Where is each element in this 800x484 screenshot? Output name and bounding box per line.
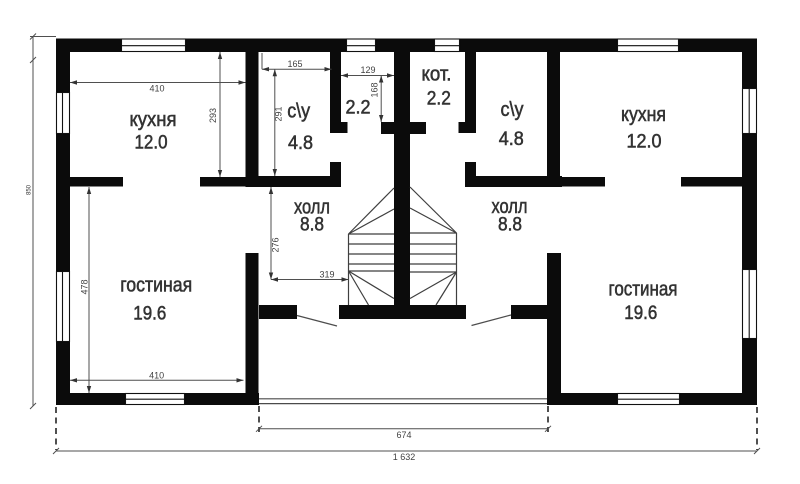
svg-text:12.0: 12.0	[627, 131, 662, 153]
svg-text:гостиная: гостиная	[609, 278, 678, 300]
svg-text:410: 410	[149, 83, 164, 93]
svg-text:с\у: с\у	[501, 99, 524, 121]
svg-text:8.8: 8.8	[498, 213, 522, 235]
svg-text:410: 410	[149, 371, 164, 381]
svg-text:1 632: 1 632	[393, 452, 416, 462]
svg-text:гостиная: гостиная	[120, 275, 192, 297]
svg-text:291: 291	[273, 106, 283, 121]
svg-text:129: 129	[360, 65, 375, 75]
svg-text:168: 168	[370, 82, 380, 97]
svg-text:19.6: 19.6	[624, 302, 657, 324]
svg-text:кот.: кот.	[422, 63, 452, 85]
svg-text:674: 674	[396, 430, 411, 440]
svg-text:319: 319	[319, 269, 334, 279]
svg-text:8.8: 8.8	[300, 213, 324, 235]
svg-text:2.2: 2.2	[427, 88, 451, 110]
svg-text:с\у: с\у	[287, 101, 310, 123]
svg-text:4.8: 4.8	[499, 128, 524, 150]
svg-text:2.2: 2.2	[346, 96, 371, 118]
svg-text:293: 293	[208, 108, 218, 123]
svg-text:850: 850	[27, 184, 33, 195]
svg-text:478: 478	[80, 279, 90, 294]
svg-text:276: 276	[270, 237, 280, 252]
svg-text:12.0: 12.0	[135, 132, 168, 154]
svg-text:19.6: 19.6	[133, 303, 166, 325]
svg-text:4.8: 4.8	[288, 132, 313, 154]
svg-text:кухня: кухня	[621, 104, 666, 126]
svg-text:165: 165	[287, 59, 302, 69]
svg-text:кухня: кухня	[130, 109, 177, 131]
